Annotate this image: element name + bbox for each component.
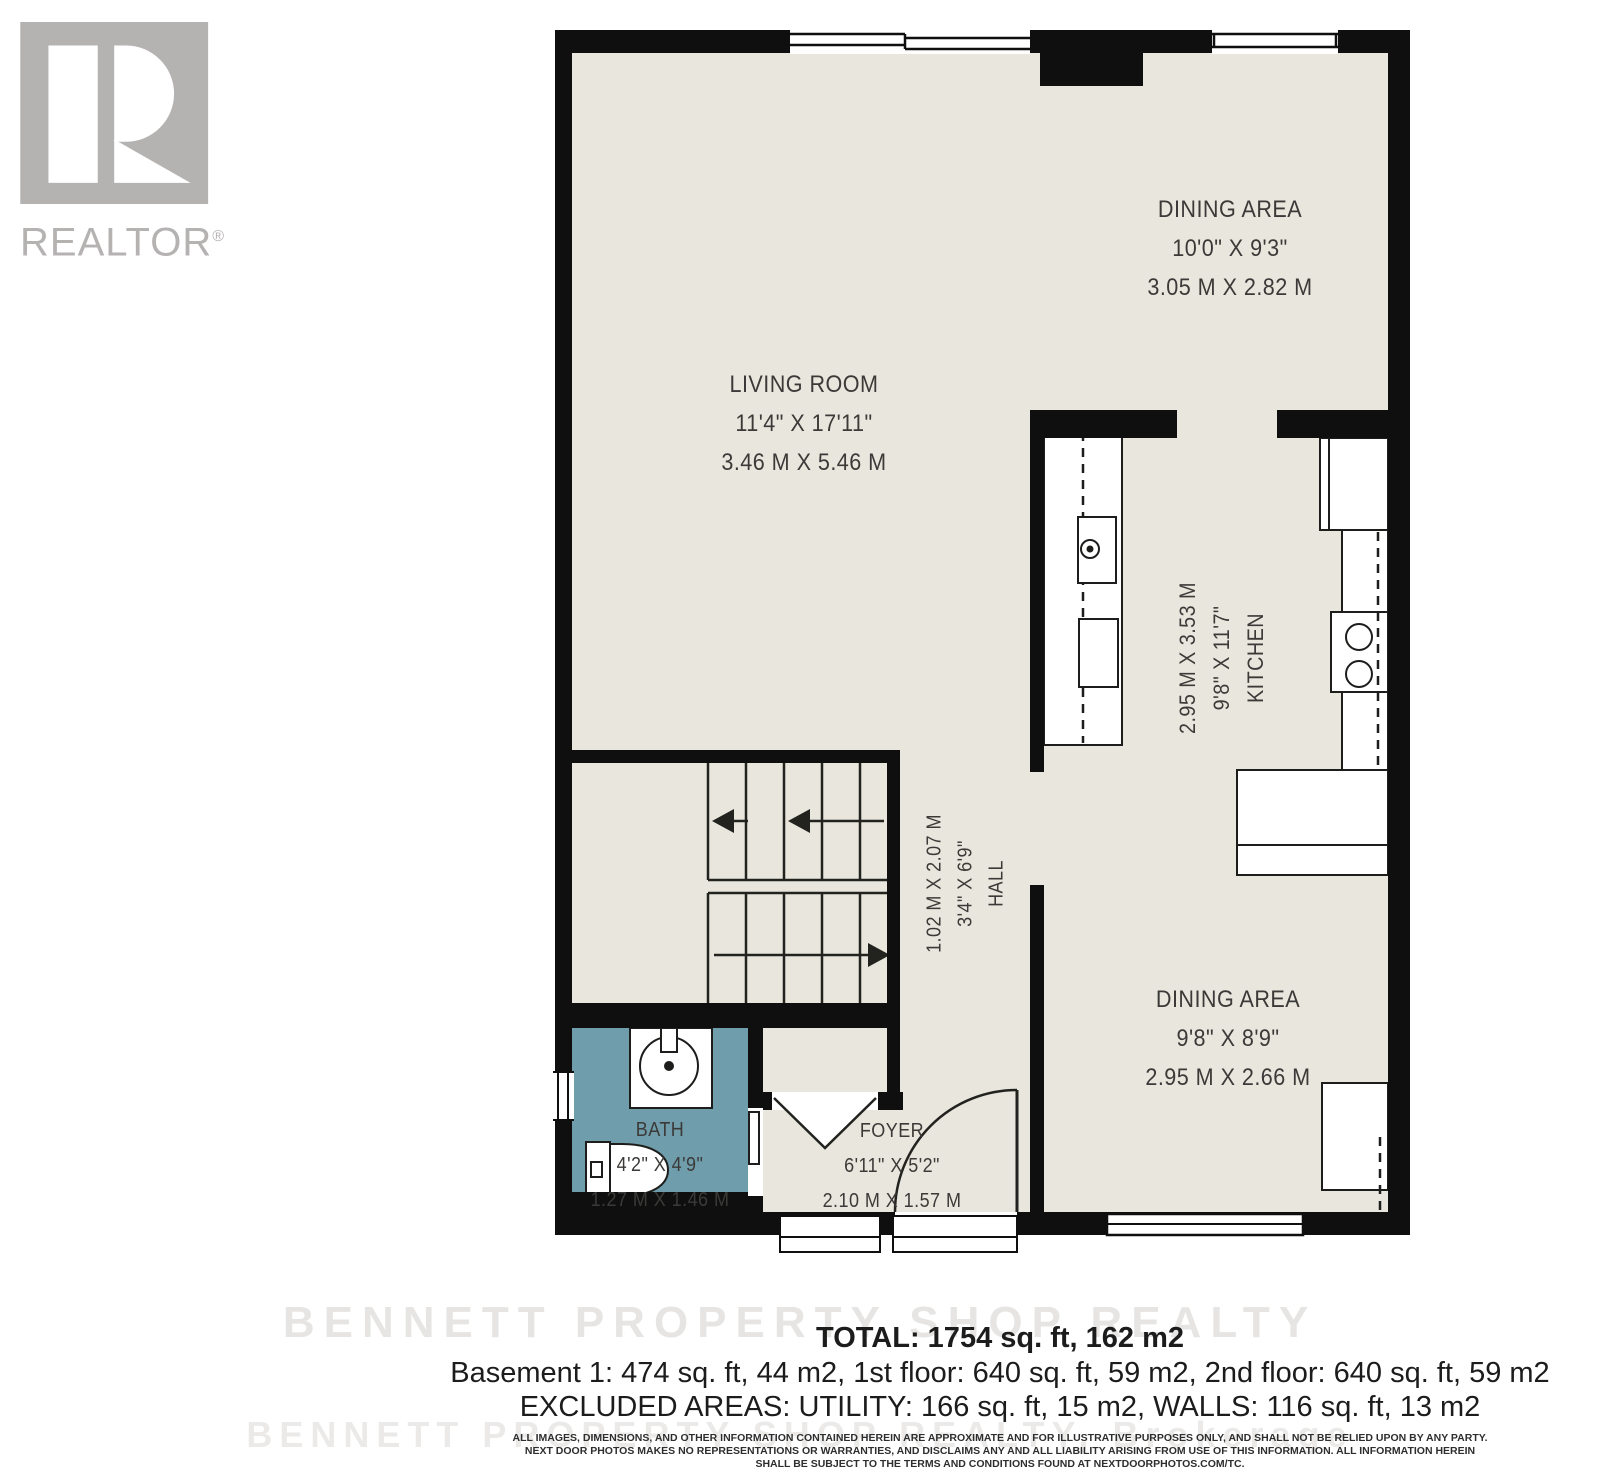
wall-hall-kitchen-upper — [1030, 410, 1044, 772]
room-dim-metric: 2.10 M X 1.57 M — [793, 1184, 991, 1219]
wall-left — [555, 30, 572, 1235]
fridge — [1320, 438, 1388, 530]
disclaimer-line-3: SHALL BE SUBJECT TO THE TERMS AND CONDIT… — [200, 1458, 1600, 1471]
wall-foyer-stub — [878, 1092, 903, 1110]
room-name: HALL — [982, 767, 1013, 1001]
sink-drain — [1088, 547, 1093, 552]
room-name: DINING AREA — [1084, 980, 1372, 1019]
entry-step — [893, 1216, 1017, 1252]
stove-burner — [1346, 661, 1372, 687]
room-dim-imperial: 3'4" X 6'9" — [951, 767, 982, 1001]
wall-right — [1388, 30, 1410, 1235]
disclaimer-line-1: ALL IMAGES, DIMENSIONS, AND OTHER INFORM… — [200, 1432, 1600, 1445]
room-dim-imperial: 11'4" X 17'11" — [660, 404, 948, 443]
realtor-wordmark: REALTOR® — [20, 217, 240, 262]
stove-burner — [1346, 624, 1372, 650]
wall-kitchen-top — [1030, 410, 1177, 438]
room-dim-metric: 1.02 M X 2.07 M — [920, 767, 951, 1001]
room-dim-metric: 2.95 M X 2.66 M — [1084, 1058, 1372, 1097]
total-area-text: TOTAL: 1754 sq. ft, 162 m2 — [200, 1322, 1600, 1355]
room-label-kitchen: 2.95 M X 3.53 M 9'8" X 11'7" KITCHEN — [1171, 541, 1273, 775]
room-label-foyer: FOYER 6'11" X 5'2" 2.10 M X 1.57 M — [793, 1114, 991, 1219]
disclaimer-line-2: NEXT DOOR PHOTOS MAKES NO REPRESENTATION… — [200, 1445, 1600, 1458]
room-dim-metric: 1.27 M X 1.46 M — [561, 1183, 759, 1218]
room-dim-metric: 2.95 M X 3.53 M — [1171, 541, 1205, 775]
floor-areas-text: Basement 1: 474 sq. ft, 44 m2, 1st floor… — [200, 1357, 1600, 1390]
kitchen-peninsula — [1237, 770, 1388, 875]
wall-kitchen-top — [1277, 410, 1388, 438]
wall-chimney — [1040, 53, 1143, 86]
wall-hall-kitchen-lower — [1030, 885, 1044, 1235]
room-dim-metric: 3.46 M X 5.46 M — [660, 443, 948, 482]
excluded-areas-text: EXCLUDED AREAS: UTILITY: 166 sq. ft, 15 … — [200, 1391, 1600, 1424]
room-dim-imperial: 9'8" X 11'7" — [1205, 541, 1239, 775]
wall-stair-right — [887, 750, 900, 1110]
room-label-living-room: LIVING ROOM 11'4" X 17'11" 3.46 M X 5.46… — [660, 365, 948, 482]
room-name: FOYER — [793, 1114, 991, 1149]
realtor-logo-icon — [20, 22, 226, 204]
entry-steps — [780, 1216, 1017, 1252]
bath-faucet — [661, 1028, 677, 1052]
room-label-hall: 1.02 M X 2.07 M 3'4" X 6'9" HALL — [920, 767, 1013, 1001]
room-dim-imperial: 9'8" X 8'9" — [1084, 1019, 1372, 1058]
window — [1212, 28, 1338, 54]
room-label-bath: BATH 4'2" X 4'9" 1.27 M X 1.46 M — [561, 1113, 759, 1218]
wall-stair-bottom — [572, 1003, 900, 1028]
room-dim-metric: 3.05 M X 2.82 M — [1086, 268, 1374, 307]
room-name: DINING AREA — [1086, 190, 1374, 229]
room-name: LIVING ROOM — [660, 365, 948, 404]
wall-bath-right — [748, 1028, 763, 1108]
room-dim-imperial: 6'11" X 5'2" — [793, 1149, 991, 1184]
realtor-logo: REALTOR® — [20, 22, 240, 262]
entry-step — [780, 1216, 880, 1252]
room-label-dining-area-bottom: DINING AREA 9'8" X 8'9" 2.95 M X 2.66 M — [1084, 980, 1372, 1097]
room-name: KITCHEN — [1239, 541, 1273, 775]
room-dim-imperial: 10'0" X 9'3" — [1086, 229, 1374, 268]
wall-stair-top — [572, 750, 900, 763]
kitchen-counter-left — [1044, 430, 1122, 745]
bath-sink-drain — [665, 1062, 673, 1070]
room-dim-imperial: 4'2" X 4'9" — [561, 1148, 759, 1183]
dining-cabinet — [1322, 1083, 1388, 1190]
kitchen-dishwasher — [1079, 619, 1118, 687]
room-name: BATH — [561, 1113, 759, 1148]
wall-foyer-stub — [763, 1092, 772, 1110]
room-label-dining-area-top: DINING AREA 10'0" X 9'3" 3.05 M X 2.82 M — [1086, 190, 1374, 307]
registered-mark: ® — [212, 228, 225, 245]
